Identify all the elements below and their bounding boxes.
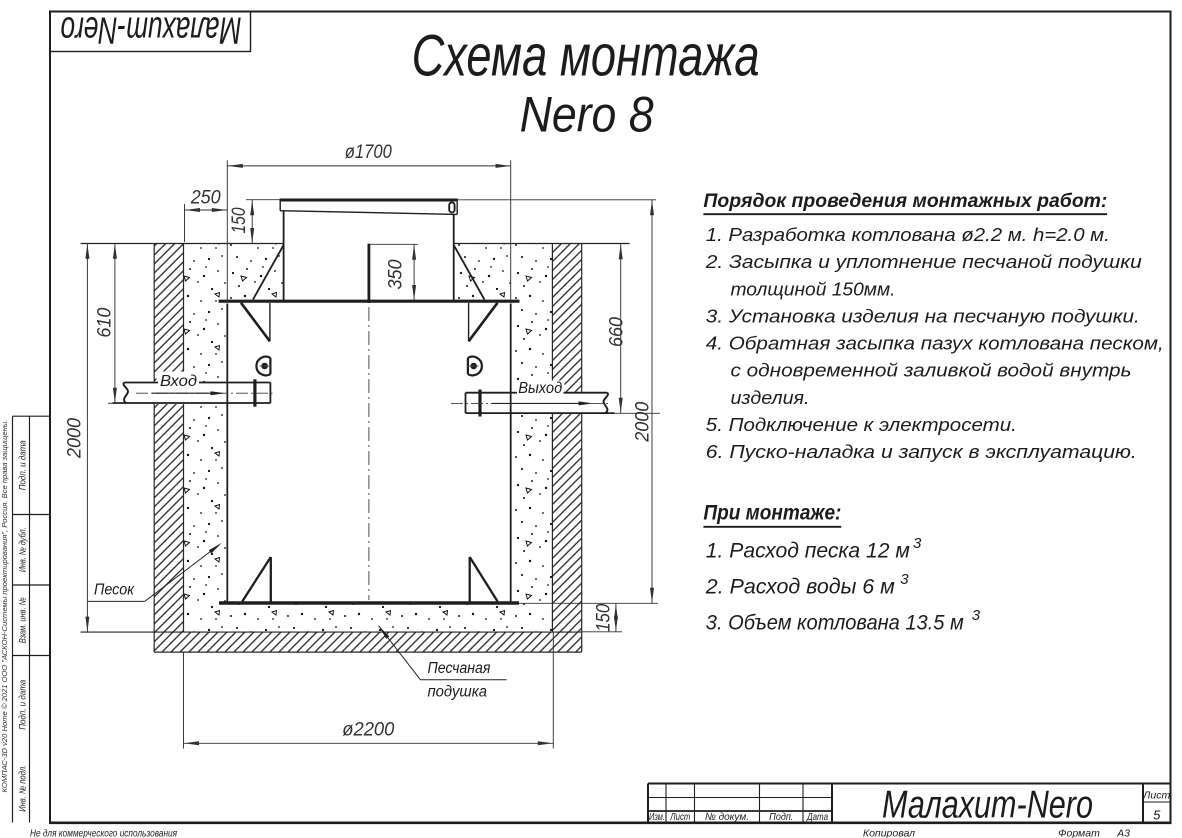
svg-text:2. Расход воды 6 м: 2. Расход воды 6 м bbox=[705, 576, 895, 599]
svg-text:1. Расход песка 12 м: 1. Расход песка 12 м bbox=[706, 540, 910, 563]
svg-text:4. Обратная засыпка пазух котл: 4. Обратная засыпка пазух котлована песк… bbox=[706, 333, 1164, 354]
svg-text:2000: 2000 bbox=[632, 402, 654, 443]
svg-text:5: 5 bbox=[1153, 808, 1161, 823]
svg-text:350: 350 bbox=[385, 259, 407, 289]
svg-text:Изм.: Изм. bbox=[649, 811, 665, 823]
svg-text:Копировал: Копировал bbox=[863, 828, 915, 838]
svg-text:3: 3 bbox=[913, 535, 922, 552]
svg-text:Песчаная: Песчаная bbox=[428, 660, 491, 677]
svg-text:с одновременной заливкой водой: с одновременной заливкой водой внутрь bbox=[731, 360, 1132, 381]
svg-text:2. Засыпка и уплотнение песчан: 2. Засыпка и уплотнение песчаной подушки bbox=[705, 251, 1142, 272]
svg-text:подушка: подушка bbox=[428, 684, 488, 701]
svg-text:Песок: Песок bbox=[94, 582, 135, 599]
svg-text:ø1700: ø1700 bbox=[345, 141, 392, 163]
svg-text:Nero 8: Nero 8 bbox=[520, 87, 654, 143]
svg-text:Схема монтажа: Схема монтажа bbox=[412, 24, 760, 89]
svg-text:Взам. инв. №: Взам. инв. № bbox=[18, 597, 28, 643]
svg-text:толщиной 150мм.: толщиной 150мм. bbox=[731, 278, 896, 299]
svg-text:3: 3 bbox=[900, 571, 909, 588]
svg-text:№ докум.: № докум. bbox=[705, 811, 749, 823]
svg-text:Порядок проведения монтажных р: Порядок проведения монтажных работ: bbox=[703, 191, 1107, 212]
svg-text:Малахит-Nero: Малахит-Nero bbox=[61, 8, 242, 50]
svg-text:изделия.: изделия. bbox=[731, 387, 810, 408]
svg-text:150: 150 bbox=[593, 604, 615, 632]
svg-text:При монтаже:: При монтаже: bbox=[703, 502, 841, 525]
svg-text:Инв. № дубл.: Инв. № дубл. bbox=[18, 527, 28, 572]
svg-text:6. Пуско-наладка и запуск в эк: 6. Пуско-наладка и запуск в эксплуатацию… bbox=[706, 441, 1137, 462]
svg-text:Подп. и дата: Подп. и дата bbox=[18, 440, 28, 490]
svg-text:Не для коммерческого использов: Не для коммерческого использования bbox=[30, 828, 177, 838]
svg-text:2000: 2000 bbox=[64, 418, 86, 459]
svg-text:3. Установка изделия на песчан: 3. Установка изделия на песчаную подушки… bbox=[706, 305, 1140, 326]
svg-text:Инв. № подл.: Инв. № подл. bbox=[18, 765, 28, 812]
svg-text:Подп.: Подп. bbox=[769, 811, 793, 823]
svg-text:3. Объем котлована 13.5 м: 3. Объем котлована 13.5 м bbox=[706, 612, 964, 635]
svg-text:1. Разработка котлована ø2.2 м: 1. Разработка котлована ø2.2 м. h=2.0 м. bbox=[706, 224, 1110, 245]
svg-text:660: 660 bbox=[606, 317, 628, 347]
svg-text:Вход: Вход bbox=[160, 373, 197, 390]
svg-text:Дата: Дата bbox=[806, 811, 828, 823]
svg-text:ø2200: ø2200 bbox=[342, 718, 394, 740]
svg-text:Малахит-Nero: Малахит-Nero bbox=[882, 783, 1093, 826]
svg-text:Лист: Лист bbox=[670, 811, 691, 823]
svg-text:Формат: Формат bbox=[1058, 828, 1100, 838]
svg-text:5. Подключение к электросети.: 5. Подключение к электросети. bbox=[706, 414, 1017, 435]
svg-text:Выход: Выход bbox=[518, 380, 562, 397]
svg-text:250: 250 bbox=[190, 187, 221, 209]
svg-text:КОМПАС-3D v20 Home © 2021 ООО: КОМПАС-3D v20 Home © 2021 ООО "АСКОН-Сис… bbox=[0, 420, 9, 793]
svg-text:Подп. и дата: Подп. и дата bbox=[18, 680, 28, 730]
svg-text:3: 3 bbox=[972, 607, 981, 624]
svg-text:Лист: Лист bbox=[1142, 790, 1170, 802]
svg-text:610: 610 bbox=[94, 307, 116, 337]
svg-text:А3: А3 bbox=[1116, 828, 1130, 838]
svg-text:150: 150 bbox=[229, 207, 250, 233]
